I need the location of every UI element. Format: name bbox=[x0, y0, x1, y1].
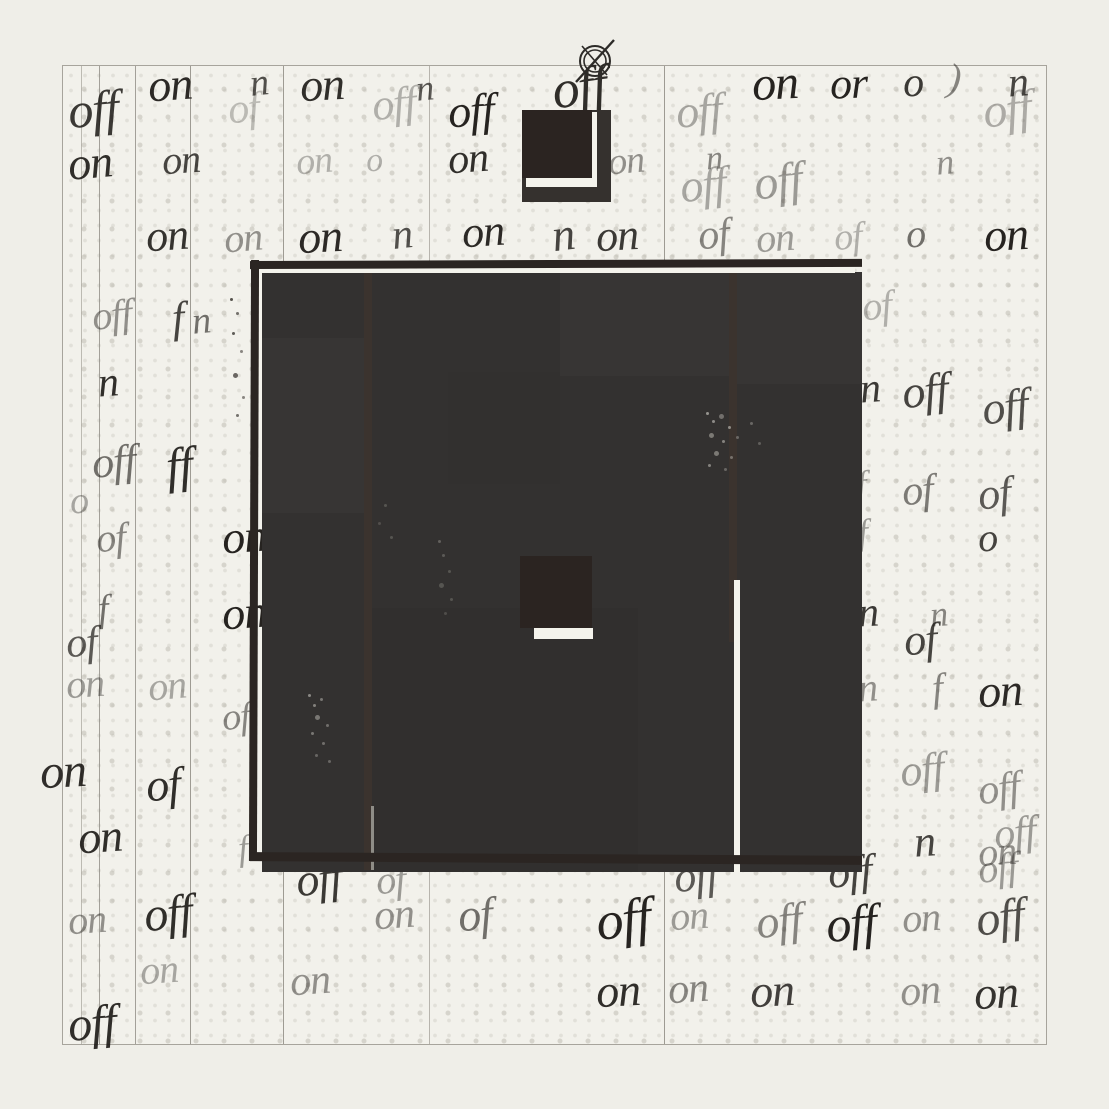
tonal-patch bbox=[448, 372, 560, 484]
inner-square bbox=[520, 556, 592, 628]
speckle-cluster bbox=[706, 412, 709, 415]
scratch-cluster bbox=[438, 540, 441, 543]
tonal-patch bbox=[737, 272, 862, 384]
white-stripe bbox=[734, 580, 740, 872]
registration-mark-icon bbox=[572, 37, 618, 85]
tonal-patch bbox=[262, 338, 368, 513]
tonal-patch bbox=[560, 272, 735, 376]
speckle-cluster bbox=[308, 694, 311, 697]
front-square bbox=[522, 110, 592, 178]
artwork-canvas: offonofnonoffnoffoffoffonoro)noffononono… bbox=[0, 0, 1109, 1109]
square-gap-h bbox=[526, 178, 597, 187]
border-left bbox=[249, 260, 259, 861]
inner-square-underline bbox=[534, 628, 593, 639]
tonal-patch bbox=[372, 608, 638, 872]
block-composition bbox=[0, 0, 1109, 1109]
divider-stripe bbox=[364, 264, 372, 870]
ink-fleck-cluster bbox=[230, 298, 233, 301]
